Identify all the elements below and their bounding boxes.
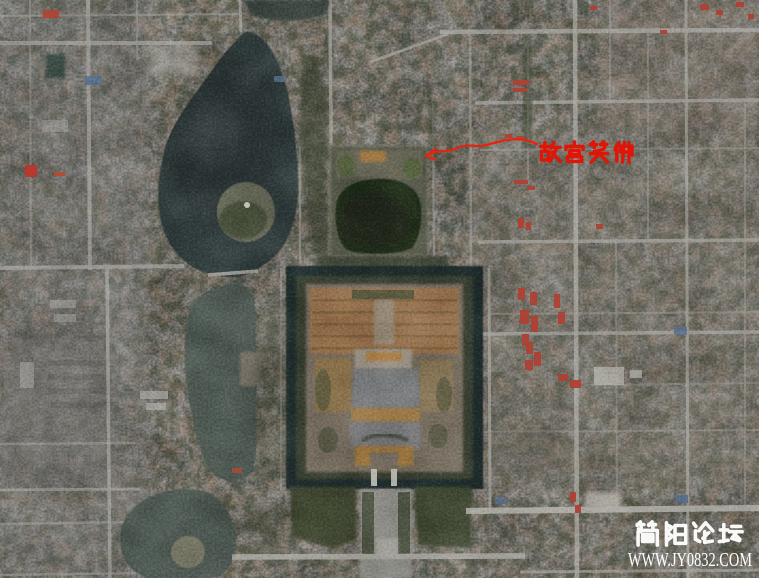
svg-text:WWW.JY0832.COM: WWW.JY0832.COM — [628, 549, 752, 571]
